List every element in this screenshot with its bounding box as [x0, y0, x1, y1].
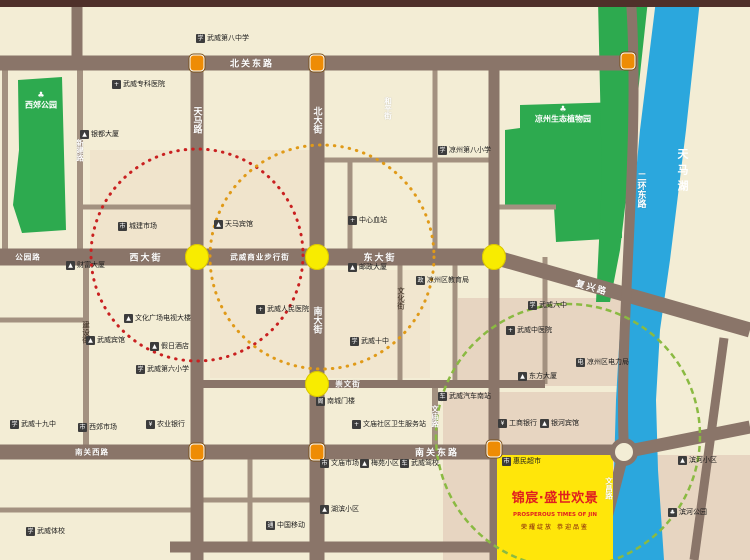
park-label: ♣西郊公园 [25, 90, 57, 109]
landmark-icon: + [112, 80, 121, 89]
landmark-name: 武威中医院 [517, 325, 552, 335]
landmark-name: 财富大厦 [77, 260, 105, 270]
landmark-name: 文庙市场 [331, 458, 359, 468]
landmark-badge: ▲财富大厦 [66, 260, 105, 270]
road-label: 崇文街 [335, 379, 361, 390]
landmark-icon: ▲ [86, 336, 95, 345]
road-label: 文昌路 [604, 477, 615, 500]
landmark-icon: 学 [196, 34, 205, 43]
landmark-name: 凉州区电力局 [587, 357, 629, 367]
landmark-icon: ¥ [146, 420, 155, 429]
tree-icon: ♣ [535, 104, 591, 114]
landmark-badge: 学武威十九中 [10, 419, 56, 429]
junction-marker [305, 371, 329, 397]
signal-marker [310, 55, 325, 72]
signal-marker [621, 53, 636, 70]
landmark-icon: 学 [136, 365, 145, 374]
lake-label: 天马湖 [674, 148, 690, 196]
landmark-icon: ▲ [360, 459, 369, 468]
landmark-name: 滨河小区 [689, 455, 717, 465]
landmark-icon: 车 [438, 392, 447, 401]
landmark-name: 武威第六小学 [147, 364, 189, 374]
landmark-name: 武威六中 [539, 300, 567, 310]
landmark-badge: 市惠民超市 [502, 456, 541, 466]
landmark-badge: 学武威六中 [528, 300, 567, 310]
landmark-badge: 市城建市场 [118, 221, 157, 231]
road-label: 北关东路 [230, 57, 274, 70]
landmark-icon: ♣ [668, 508, 677, 517]
landmark-badge: +武威人民医院 [256, 304, 309, 314]
landmark-badge: +中心血站 [348, 215, 387, 225]
landmark-name: 农业银行 [157, 419, 185, 429]
landmark-icon: ▲ [80, 130, 89, 139]
park-name: 西郊公园 [25, 100, 57, 110]
landmark-icon: 学 [528, 301, 537, 310]
road-label: 文庙路 [430, 405, 441, 428]
landmark-name: 城建市场 [129, 221, 157, 231]
park-label: ♣凉州生态植物园 [535, 104, 591, 123]
landmark-badge: 学凉州第八小学 [438, 145, 491, 155]
tree-icon: ♣ [25, 90, 57, 100]
road-label: 公园路 [15, 252, 41, 263]
landmark-badge: ▲武威宾馆 [86, 335, 125, 345]
landmark-icon: 市 [78, 423, 87, 432]
landmark-name: 银河宾馆 [551, 418, 579, 428]
landmark-badge: ¥工商银行 [498, 418, 537, 428]
landmark-name: 东方大厦 [529, 371, 557, 381]
road-label: 文化街 [396, 287, 407, 310]
landmark-icon: 学 [26, 527, 35, 536]
landmark-icon: ▲ [348, 263, 357, 272]
landmark-icon: ▲ [124, 314, 133, 323]
landmark-name: 文庙社区卫生服务站 [363, 419, 426, 429]
landmark-badge: ▲天马宾馆 [214, 219, 253, 229]
landmark-icon: ▲ [214, 220, 223, 229]
landmark-icon: 学 [438, 146, 447, 155]
landmark-badge: 电凉州区电力局 [576, 357, 629, 367]
landmark-badge: ▲文化广场电视大楼 [124, 313, 191, 323]
landmark-icon: 市 [502, 457, 511, 466]
road-label: 新建路 [75, 139, 86, 162]
road-label: 南大街 [311, 307, 324, 334]
landmark-badge: 通中国移动 [266, 520, 305, 530]
landmark-icon: ▲ [678, 456, 687, 465]
landmark-name: 凉州区教育局 [427, 275, 469, 285]
landmark-icon: 学 [350, 337, 359, 346]
road-label: 北大街 [311, 107, 324, 134]
road-label: 天马路 [191, 107, 204, 134]
park-name: 凉州生态植物园 [535, 114, 591, 124]
landmark-icon: 阁 [316, 397, 325, 406]
road-label: 南关西路 [75, 447, 109, 458]
landmark-badge: ▲邮政大厦 [348, 262, 387, 272]
landmark-icon: 电 [576, 358, 585, 367]
landmark-name: 武威专科医院 [123, 79, 165, 89]
landmark-badge: ▲东方大厦 [518, 371, 557, 381]
landmark-badge: ▲湖滨小区 [320, 504, 359, 514]
road-label: 和平街 [383, 97, 394, 120]
project-tagline: 荣耀绽放 恭迎品鉴 [497, 522, 613, 531]
landmark-name: 工商银行 [509, 418, 537, 428]
landmark-badge: ▲滨河小区 [678, 455, 717, 465]
landmark-badge: ▲银都大厦 [80, 129, 119, 139]
landmark-name: 南城门楼 [327, 396, 355, 406]
landmark-icon: 政 [416, 276, 425, 285]
landmark-name: 武威宾馆 [97, 335, 125, 345]
landmark-name: 凉州第八小学 [449, 145, 491, 155]
landmark-icon: + [348, 216, 357, 225]
landmark-icon: + [352, 420, 361, 429]
landmark-name: 梅苑小区 [371, 458, 399, 468]
landmark-icon: + [256, 305, 265, 314]
landmark-badge: 政凉州区教育局 [416, 275, 469, 285]
landmark-badge: +武威中医院 [506, 325, 552, 335]
project-highlight-block: 锦宸·盛世欢景 PROSPEROUS TIMES OF JIN 荣耀绽放 恭迎品… [497, 455, 613, 560]
landmark-name: 文化广场电视大楼 [135, 313, 191, 323]
road-label: 南关东路 [415, 446, 459, 459]
signal-marker [487, 441, 502, 458]
landmark-name: 武威汽车南站 [449, 391, 491, 401]
landmark-name: 武威人民医院 [267, 304, 309, 314]
landmark-badge: +文庙社区卫生服务站 [352, 419, 426, 429]
landmark-badge: ▲银河宾馆 [540, 418, 579, 428]
landmark-badge: ♣滨河公园 [668, 507, 707, 517]
landmark-name: 湖滨小区 [331, 504, 359, 514]
landmark-icon: 市 [320, 459, 329, 468]
landmark-icon: 市 [118, 222, 127, 231]
landmark-badge: ¥农业银行 [146, 419, 185, 429]
landmark-name: 武威十中 [361, 336, 389, 346]
landmark-name: 武威体校 [37, 526, 65, 536]
landmark-name: 中心血站 [359, 215, 387, 225]
landmark-name: 银都大厦 [91, 129, 119, 139]
landmark-badge: 车武威驾校 [400, 458, 439, 468]
landmark-name: 滨河公园 [679, 507, 707, 517]
junction-marker [305, 244, 329, 270]
junction-marker [185, 244, 209, 270]
landmark-badge: ▲假日酒店 [150, 341, 189, 351]
landmark-badge: 市西郊市场 [78, 422, 117, 432]
landmark-name: 西郊市场 [89, 422, 117, 432]
landmark-name: 武威第八中学 [207, 33, 249, 43]
landmark-badge: 学武威第六小学 [136, 364, 189, 374]
project-name: 锦宸·盛世欢景 [497, 487, 613, 506]
landmark-badge: ▲梅苑小区 [360, 458, 399, 468]
project-subtitle: PROSPEROUS TIMES OF JIN [497, 512, 613, 518]
landmark-icon: ▲ [320, 505, 329, 514]
landmark-badge: +武威专科医院 [112, 79, 165, 89]
landmark-icon: ¥ [498, 419, 507, 428]
landmark-icon: 学 [10, 420, 19, 429]
landmark-icon: ▲ [518, 372, 527, 381]
landmark-badge: 学武威第八中学 [196, 33, 249, 43]
junction-marker [482, 244, 506, 270]
road-label: 西大街 [129, 251, 162, 264]
landmark-name: 武威驾校 [411, 458, 439, 468]
landmark-name: 惠民超市 [513, 456, 541, 466]
roundabout-marker [610, 438, 638, 466]
landmark-name: 邮政大厦 [359, 262, 387, 272]
landmark-name: 中国移动 [277, 520, 305, 530]
landmark-badge: 学武威体校 [26, 526, 65, 536]
signal-marker [190, 444, 205, 461]
landmark-name: 假日酒店 [161, 341, 189, 351]
landmark-badge: 市文庙市场 [320, 458, 359, 468]
landmark-icon: ▲ [540, 419, 549, 428]
landmark-icon: 车 [400, 459, 409, 468]
road-label: 二环东路 [635, 172, 648, 208]
landmark-icon: ▲ [150, 342, 159, 351]
landmark-badge: 学武威十中 [350, 336, 389, 346]
landmark-name: 天马宾馆 [225, 219, 253, 229]
landmark-icon: 通 [266, 521, 275, 530]
landmark-name: 武威十九中 [21, 419, 56, 429]
landmark-badge: 阁南城门楼 [316, 396, 355, 406]
landmark-icon: + [506, 326, 515, 335]
map-top-border [0, 0, 750, 7]
signal-marker [190, 55, 205, 72]
landmark-icon: ▲ [66, 261, 75, 270]
landmark-badge: 车武威汽车南站 [438, 391, 491, 401]
city-location-map: 锦宸·盛世欢景 PROSPEROUS TIMES OF JIN 荣耀绽放 恭迎品… [0, 0, 750, 560]
road-label: 武威商业步行街 [230, 252, 290, 263]
